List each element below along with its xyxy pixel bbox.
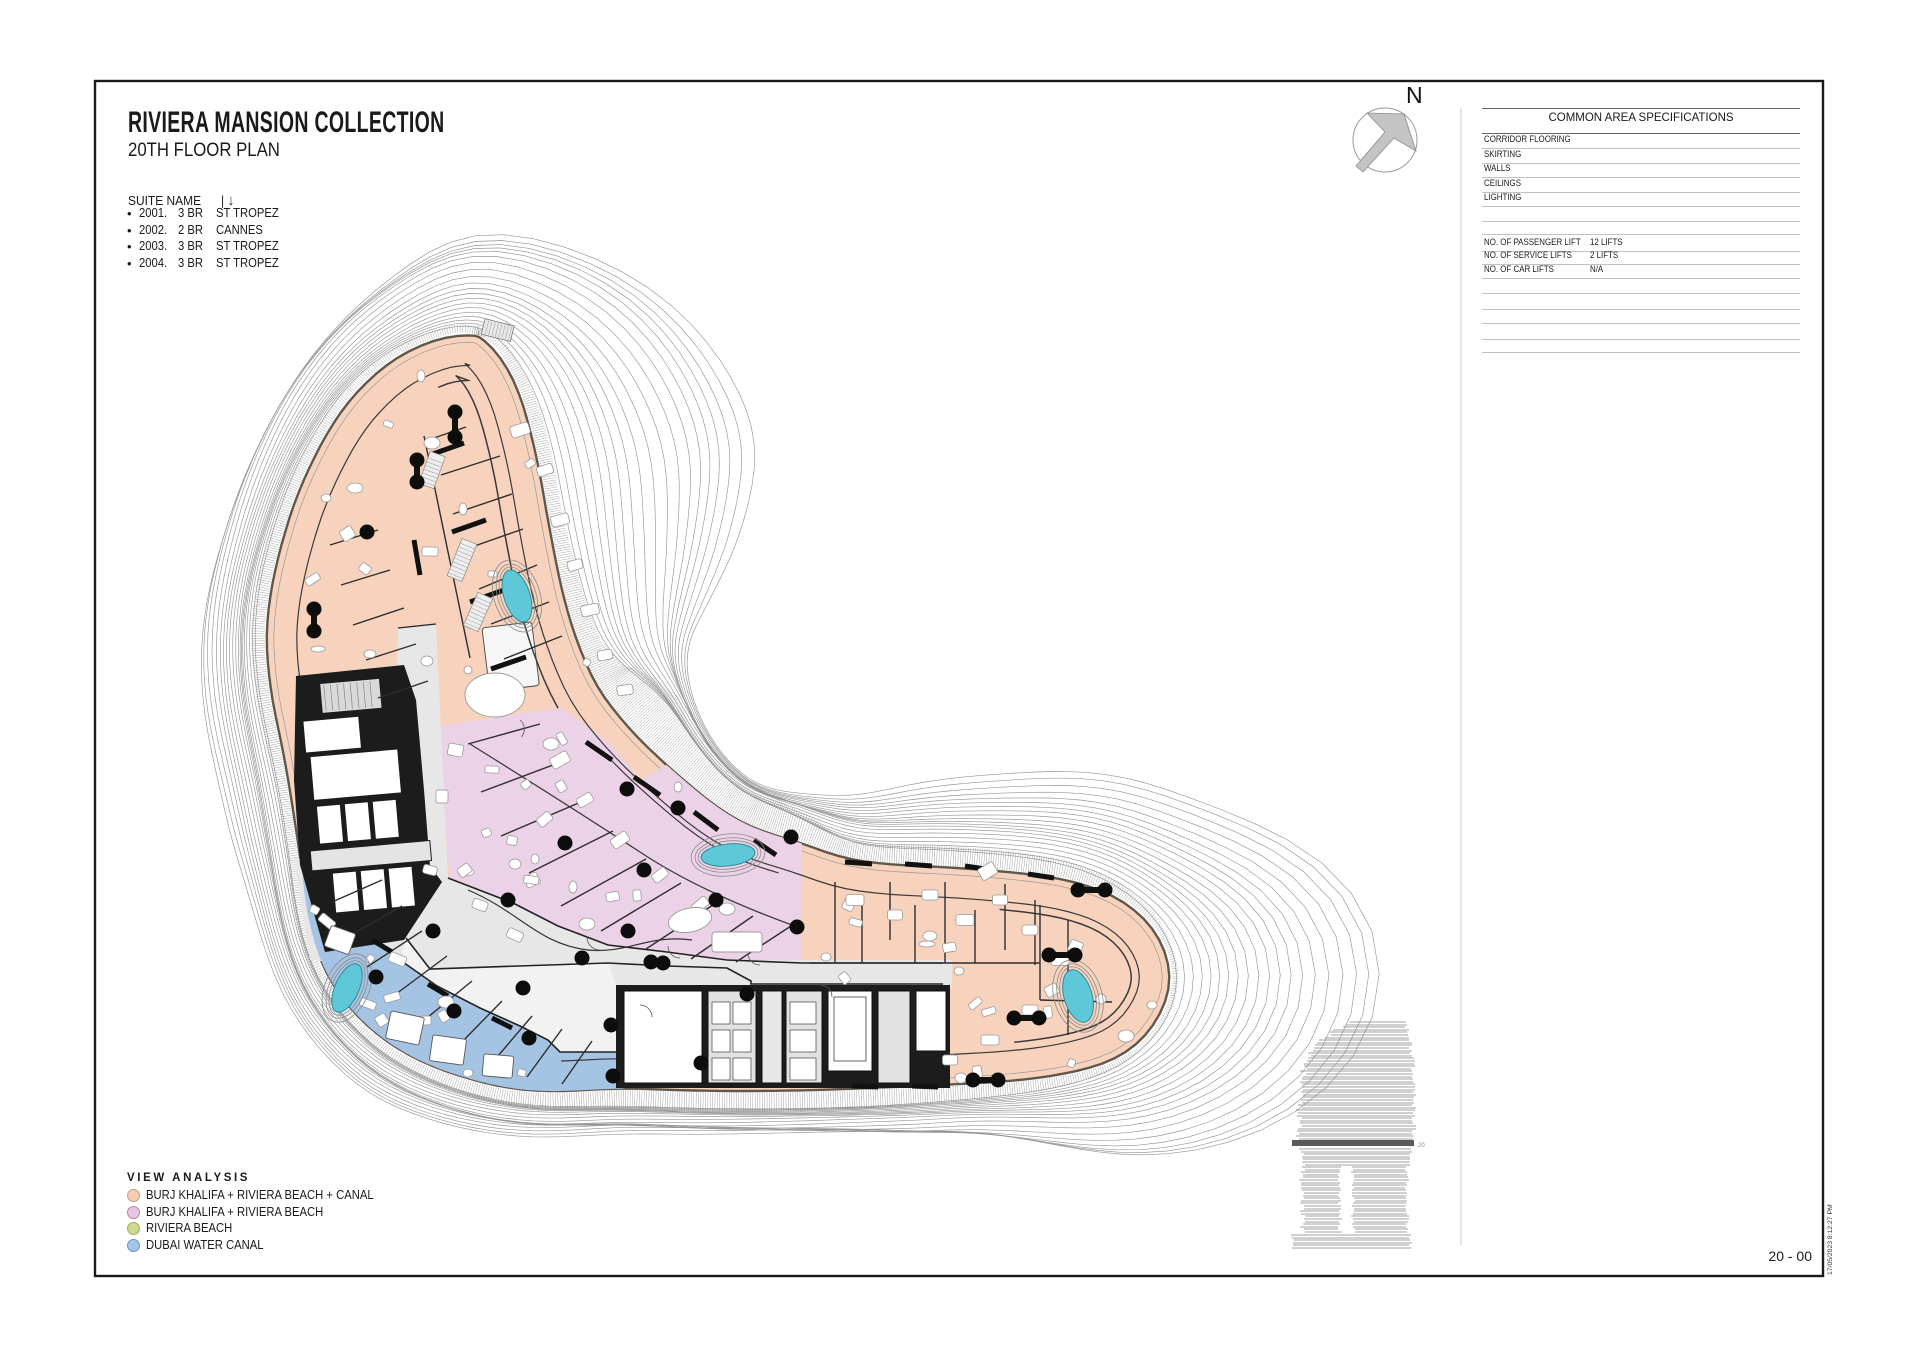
svg-text:20: 20	[1418, 1143, 1425, 1149]
svg-text:N: N	[1406, 82, 1423, 108]
